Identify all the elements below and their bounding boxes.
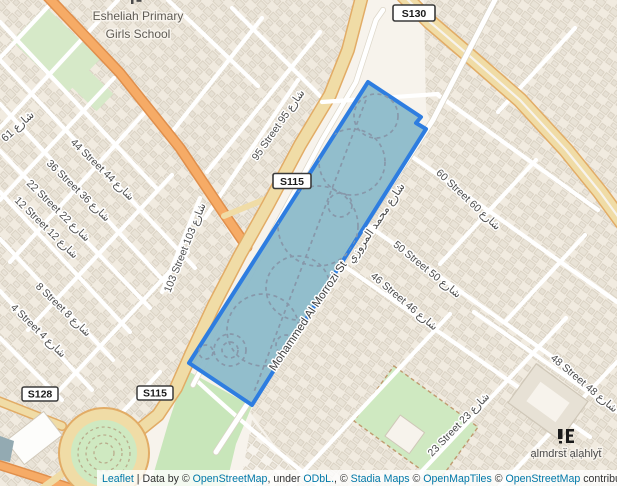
attribution-link-stadia[interactable]: Stadia Maps bbox=[351, 473, 410, 485]
attribution-link-openmaptiles[interactable]: OpenMapTiles bbox=[423, 473, 492, 485]
svg-text:Leaflet | Data by © OpenStreet: Leaflet | Data by © OpenStreetMap, under… bbox=[102, 473, 617, 485]
school-name-line1: Esheliah Primary bbox=[93, 9, 184, 23]
shield-s115-bottom: S115 bbox=[137, 386, 173, 400]
mosque-school-label: ạlmdrsẗ ạlạhlyẗ bbox=[531, 448, 603, 460]
attribution-text: | Data by © bbox=[134, 473, 193, 485]
attribution-link-leaflet[interactable]: Leaflet bbox=[102, 473, 134, 485]
school-icon bbox=[558, 429, 574, 444]
svg-text:S130: S130 bbox=[402, 8, 427, 20]
attribution-bar: Leaflet | Data by © OpenStreetMap, under… bbox=[97, 470, 617, 486]
attribution-link-osm-2[interactable]: OpenStreetMap bbox=[505, 473, 580, 485]
shield-s130: S130 bbox=[393, 5, 435, 21]
attribution-link-odbl[interactable]: ODbL. bbox=[303, 473, 334, 485]
svg-text:S115: S115 bbox=[143, 388, 167, 400]
school-name-line2: Girls School bbox=[106, 27, 171, 41]
attribution-text: , © bbox=[334, 473, 351, 485]
attribution-text: © bbox=[410, 473, 424, 485]
attribution-text: contributors bbox=[580, 473, 617, 485]
shield-s128: S128 bbox=[22, 387, 58, 401]
attribution-text: © bbox=[492, 473, 506, 485]
attribution-link-osm-1[interactable]: OpenStreetMap bbox=[193, 473, 268, 485]
leaflet-map-canvas[interactable]: 44 Street 44 شارع 36 Street 36 شارع 22 S… bbox=[0, 0, 617, 486]
svg-text:S115: S115 bbox=[280, 176, 304, 188]
shield-s115-top: S115 bbox=[273, 174, 311, 189]
svg-text:S128: S128 bbox=[28, 389, 53, 401]
attribution-text: , under bbox=[267, 473, 303, 485]
